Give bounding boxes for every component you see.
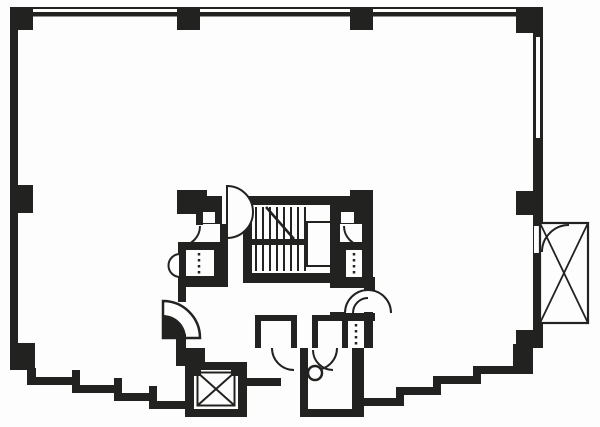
elevator-jamb-left [194, 370, 201, 376]
step-wall-bl-1 [27, 377, 80, 385]
stall-right-left-wall [312, 315, 318, 348]
column-left-bottom [10, 343, 35, 370]
stair-bottom-wall [243, 273, 340, 283]
column-top-2 [177, 9, 200, 30]
stall-left-top-wall [255, 315, 297, 321]
toilet-left-wall [300, 348, 308, 417]
closet-right-right-wall [362, 250, 373, 278]
step-tab-bl-2 [114, 378, 122, 386]
step-wall-bl-2 [72, 385, 122, 393]
core-notch-tl [202, 212, 215, 223]
top-wall [10, 12, 543, 17]
stall-left-right-wall [291, 315, 297, 348]
floor-plan-scan [0, 0, 600, 427]
step-tab-bl-3 [149, 386, 157, 394]
step-wall-bl-3 [114, 393, 157, 401]
column-top-left [10, 9, 33, 30]
stall-left-left-wall [255, 315, 261, 348]
top-wall-outer-line [10, 7, 543, 9]
stair-landing-edge [307, 222, 330, 266]
column-right-mid [516, 191, 543, 215]
core-left-wall-lower [178, 285, 186, 302]
duct-shaft-right-wall [364, 312, 373, 348]
step-tab-bl-1 [72, 370, 80, 378]
step-wall-br-4 [473, 366, 515, 374]
window-strip-right [536, 37, 540, 138]
stair-handrail [250, 239, 308, 245]
column-left-mid [10, 185, 33, 213]
lobby-stub-wall [247, 378, 281, 386]
door-swing-semi [345, 290, 391, 313]
column-top-right [516, 9, 543, 33]
step-wall-bl-4 [149, 401, 191, 409]
floor-plan-svg [0, 0, 600, 427]
step-wall-br-3 [433, 376, 481, 384]
core-wall-tl-small [196, 205, 203, 225]
toilet-right-wall [352, 348, 364, 417]
core-notch-tr [341, 212, 354, 223]
step-wall-br-2 [396, 387, 441, 395]
elevator-jamb-right [231, 370, 238, 376]
step-wall-br-1 [358, 398, 404, 406]
toilet-fixture [308, 366, 322, 380]
door-swing-stall-left [272, 348, 294, 370]
column-top-3 [350, 9, 373, 30]
fountain-left [169, 254, 181, 277]
stall-right-right-wall [342, 315, 348, 348]
stair-right-wall [330, 205, 340, 283]
step-block-br [513, 344, 533, 374]
